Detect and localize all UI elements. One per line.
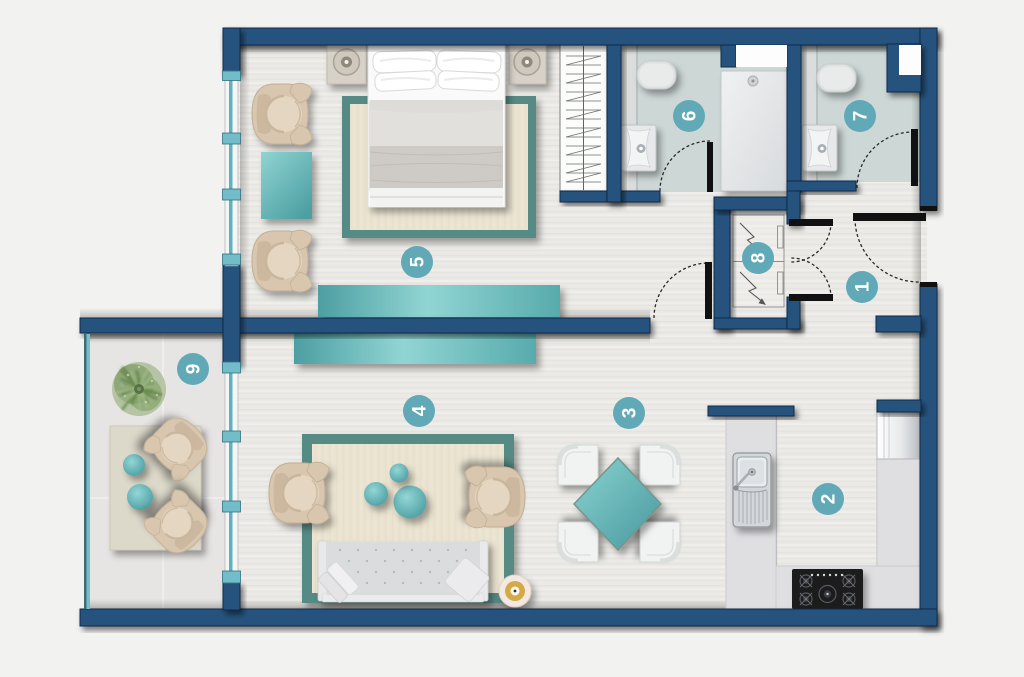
svg-text:2: 2 bbox=[819, 494, 840, 505]
svg-text:8: 8 bbox=[749, 253, 770, 264]
svg-text:3: 3 bbox=[620, 408, 641, 419]
svg-text:5: 5 bbox=[408, 256, 429, 267]
svg-text:9: 9 bbox=[184, 364, 205, 375]
svg-text:6: 6 bbox=[680, 111, 701, 122]
svg-text:1: 1 bbox=[853, 281, 874, 292]
svg-text:4: 4 bbox=[410, 405, 431, 416]
svg-text:7: 7 bbox=[851, 111, 872, 122]
